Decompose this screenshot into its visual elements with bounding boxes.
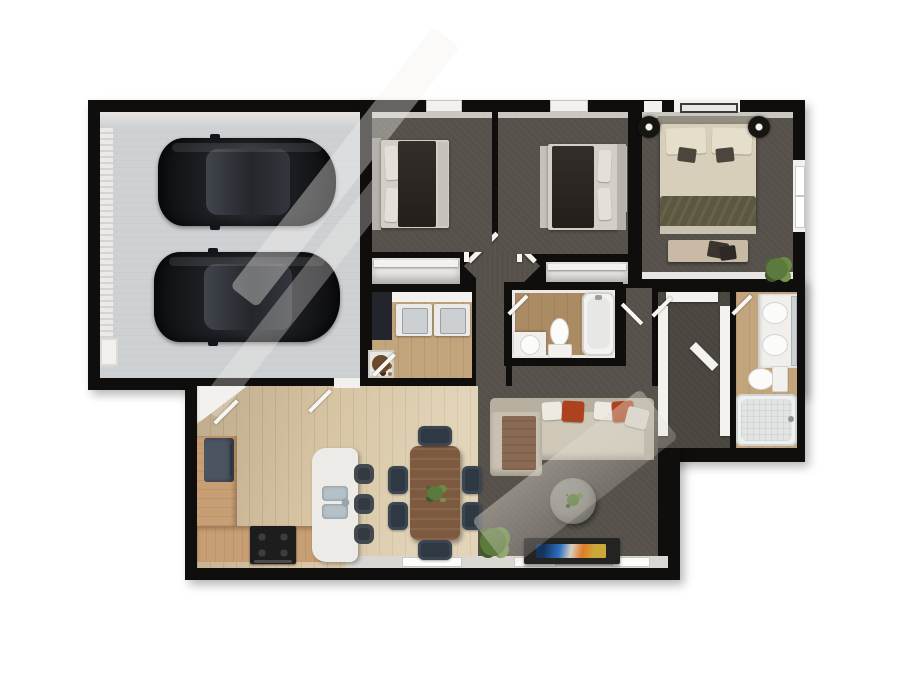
car-mirror: [210, 224, 220, 230]
bedroom-a-bed: [372, 136, 452, 232]
sofa: [490, 398, 654, 476]
kitchen-island: [312, 448, 358, 562]
dryer-lid: [440, 308, 466, 334]
bedroom-b-bed: [540, 142, 628, 232]
island-sink: [322, 486, 348, 520]
bed-pillow: [384, 188, 399, 223]
sofa-throw-blanket: [502, 416, 536, 470]
bed-duvet: [552, 146, 594, 228]
bedroom-b-closet: [546, 262, 628, 284]
bed-headboard: [617, 144, 626, 230]
hallway-carpet-lower: [512, 366, 628, 388]
table-centerpiece: [427, 486, 443, 500]
refrigerator: [204, 438, 234, 482]
dining-chair: [418, 426, 452, 446]
tv-console: [524, 538, 620, 564]
window-frame: [680, 103, 738, 113]
hall-sink: [520, 335, 540, 355]
bedroom-a-closet: [372, 258, 460, 284]
car-roof-highlight: [172, 143, 322, 152]
dining-chair: [388, 466, 408, 494]
bed-footboard: [438, 142, 448, 226]
sofa-pillow-white: [541, 401, 562, 420]
hall-vanity: [514, 332, 546, 356]
master-vanity: [758, 294, 797, 368]
car-mirror: [210, 134, 220, 140]
vanity-sink-2: [762, 334, 788, 356]
bed-pillow: [597, 188, 612, 221]
bedroom-b-wall-cap: [498, 112, 628, 118]
car-windows: [206, 149, 290, 214]
ottoman: [550, 478, 596, 524]
window-frame: [795, 166, 805, 228]
vanity-mirror: [791, 296, 797, 366]
laundry-alcove: [372, 292, 392, 340]
tub-basin: [587, 297, 610, 349]
hall-toilet: [547, 318, 571, 358]
master-plant: [766, 258, 788, 280]
closet-shelf-left: [658, 306, 668, 436]
closet-shelf: [548, 264, 626, 270]
dining-chair: [462, 502, 482, 530]
window-master-small: [644, 101, 662, 112]
closet-shelf: [374, 260, 458, 267]
nightstand-lamp: [748, 116, 770, 138]
garage-door: [100, 128, 113, 368]
toilet-tank: [772, 366, 788, 392]
nightstand-lamp: [638, 116, 660, 138]
master-bathtub: [736, 394, 797, 446]
dryer: [434, 304, 470, 336]
window-bedroom-b: [550, 100, 588, 112]
fridge-handle: [230, 444, 232, 476]
washer: [396, 304, 432, 336]
stove: [250, 526, 296, 564]
bed-pillow: [384, 146, 399, 181]
dining-chair: [388, 502, 408, 530]
vanity-sink-1: [762, 302, 788, 324]
tv-screen: [536, 544, 606, 558]
bar-stool: [354, 464, 374, 484]
bench-pillow: [719, 245, 737, 261]
sofa-pillow-red: [561, 400, 584, 422]
sink-basin: [322, 504, 348, 519]
garage-utility-box: [100, 338, 118, 366]
floor-plan: [0, 0, 900, 675]
sink-faucet: [342, 499, 349, 506]
dining-chair: [462, 466, 482, 494]
dining-chair: [418, 540, 452, 560]
garage-entry-threshold: [334, 378, 360, 388]
toilet-tank: [548, 344, 572, 358]
bed-headboard: [372, 138, 381, 230]
toilet-bowl: [748, 368, 774, 390]
bed-pillow: [597, 150, 612, 183]
bed-olive-blanket: [660, 196, 756, 230]
sofa-armrest: [644, 398, 654, 460]
tub-faucet: [788, 416, 794, 422]
laundry-counter: [392, 292, 472, 302]
window-bedroom-a: [426, 100, 462, 112]
dining-table: [410, 446, 460, 540]
master-toilet: [748, 364, 788, 392]
ottoman-plant: [567, 494, 579, 506]
master-bed: [636, 114, 796, 274]
bed-foot-frame: [660, 226, 756, 234]
washer-lid: [402, 308, 428, 334]
hall-bathtub: [582, 292, 615, 356]
bed-duvet: [398, 141, 436, 227]
tub-faucet: [595, 295, 602, 300]
toilet-bowl: [550, 318, 569, 346]
bar-stool: [354, 524, 374, 544]
car-mirror: [208, 248, 218, 254]
closet-shelf-right: [720, 306, 730, 436]
bed-accent-pillow: [715, 147, 734, 163]
window-master-large: [674, 100, 740, 112]
car-mirror: [208, 340, 218, 346]
garage-wall-cap: [100, 112, 360, 128]
bed-accent-pillow: [677, 147, 697, 163]
tub-basin: [741, 399, 792, 441]
window-mullion: [795, 195, 805, 197]
closet-shelf-top: [666, 292, 718, 302]
living-room-plant: [480, 528, 506, 556]
hallway-carpet-master: [626, 288, 652, 388]
stove-handle: [254, 560, 292, 563]
bar-stool: [354, 494, 374, 514]
